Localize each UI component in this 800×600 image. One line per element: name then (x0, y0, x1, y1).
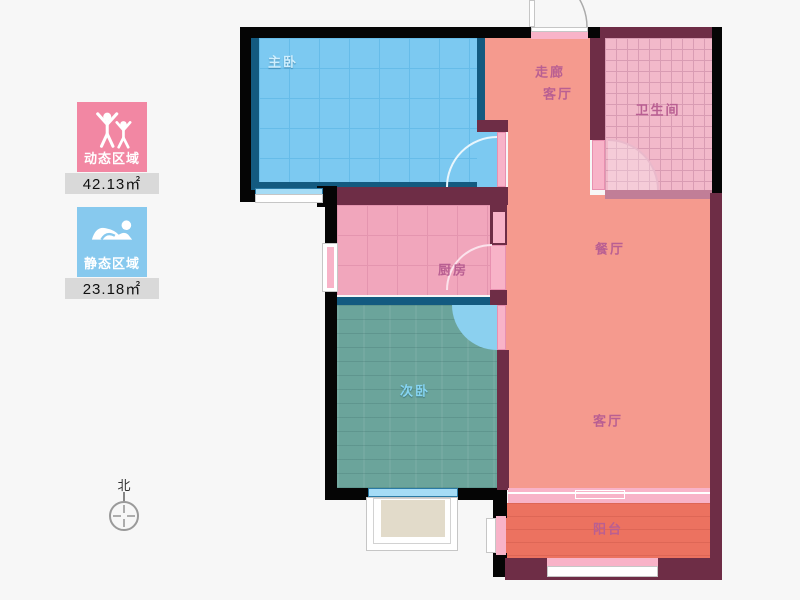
balcony-window-pane (547, 558, 658, 566)
wall (490, 290, 507, 305)
second-bedroom-window (368, 488, 458, 497)
wall (325, 195, 337, 245)
sleeping-person-icon (89, 215, 135, 245)
balcony-side-window-pane (496, 516, 506, 555)
wall (240, 27, 251, 202)
room-label-living-upper: 客厅 (543, 84, 573, 103)
master-bedroom-door[interactable] (497, 132, 506, 187)
room-kitchen[interactable] (337, 205, 490, 295)
compass: 北 (96, 476, 152, 538)
balcony-window-sill (547, 566, 658, 577)
legend-value-static: 23.18㎡ (65, 278, 159, 299)
room-hallway-lower (508, 120, 590, 197)
wall (240, 27, 532, 38)
wall (325, 290, 337, 488)
room-label-balcony: 阳台 (593, 519, 623, 538)
room-label-hallway: 走廊 (535, 62, 565, 81)
legend-label-static: 静态区域 (84, 253, 140, 272)
room-label-bathroom: 卫生间 (635, 100, 680, 119)
wall (337, 187, 508, 205)
kitchen-window-pane (327, 247, 334, 288)
legend-value-dynamic: 42.13㎡ (65, 173, 159, 194)
sliding-door-handle (575, 490, 625, 499)
wall (605, 190, 712, 199)
wall (587, 27, 600, 38)
wall (712, 27, 722, 195)
wall (477, 120, 508, 132)
kitchen-door[interactable] (490, 245, 506, 290)
wall (240, 190, 256, 202)
entrance-door-arc (532, 0, 587, 27)
entrance-door-leaf (529, 0, 535, 27)
room-label-dining: 餐厅 (595, 239, 625, 258)
master-bedroom-window-sill (255, 194, 323, 203)
legend-badge-static: 静态区域 (77, 207, 147, 277)
wall (325, 488, 370, 500)
bay-window-sill (381, 500, 445, 537)
wall (493, 490, 507, 518)
room-label-living-lower: 客厅 (593, 411, 623, 430)
balcony-side-window (486, 518, 496, 553)
compass-icon: 北 (96, 476, 152, 538)
standing-people-icon (89, 110, 135, 152)
entrance-door-sill (531, 32, 588, 39)
room-label-master-bedroom: 主卧 (268, 52, 298, 71)
kitchen-pass-window (493, 212, 505, 243)
compass-north-label: 北 (117, 478, 130, 493)
wall (710, 193, 722, 580)
wall (497, 350, 509, 490)
wall (590, 38, 605, 140)
second-bedroom-door[interactable] (497, 305, 506, 350)
master-bedroom-door-opening (477, 132, 497, 187)
bathroom-door[interactable] (592, 140, 605, 190)
legend-badge-dynamic: 动态区域 (77, 102, 147, 172)
wall (600, 27, 712, 38)
room-label-second-bedroom: 次卧 (400, 381, 430, 400)
room-label-kitchen: 厨房 (438, 260, 468, 279)
floorplan-canvas: 动态区域 42.13㎡ 静态区域 23.18㎡ 北 (0, 0, 800, 600)
